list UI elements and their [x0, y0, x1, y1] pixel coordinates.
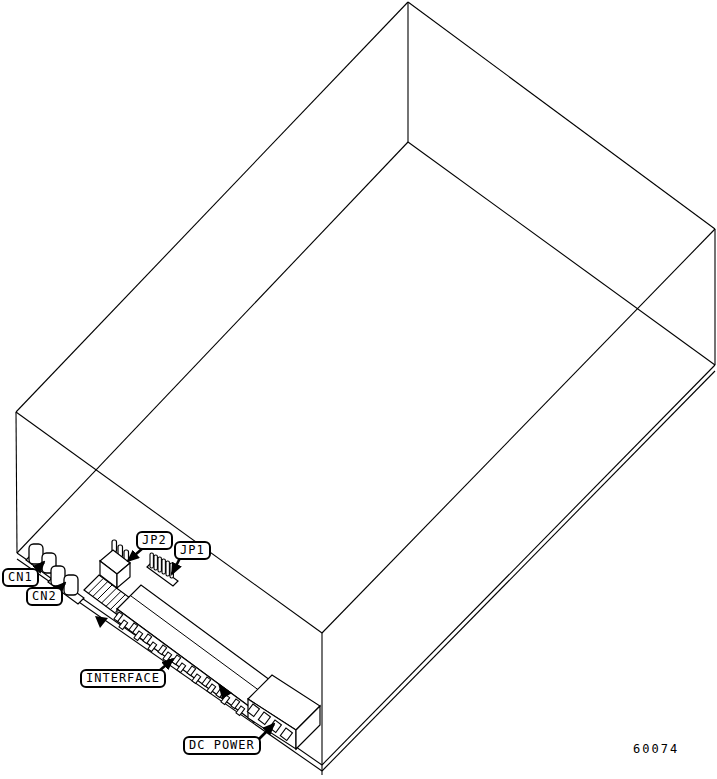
callout-jp1: JP1 [174, 541, 211, 560]
figure-number: 60074 [633, 742, 679, 756]
callout-jp2: JP2 [136, 531, 173, 550]
callout-cn1: CN1 [2, 568, 39, 587]
board-direction-arrow [95, 616, 108, 628]
callout-cn2: CN2 [26, 587, 63, 606]
connector-location-diagram: CN1 CN2 JP2 JP1 INTERFACE DC POWER 60074 [0, 0, 717, 779]
enclosure-wireframe [16, 2, 715, 775]
callout-interface: INTERFACE [80, 669, 166, 688]
callout-dc-power: DC POWER [183, 736, 261, 755]
device-outline-drawing [0, 0, 717, 779]
